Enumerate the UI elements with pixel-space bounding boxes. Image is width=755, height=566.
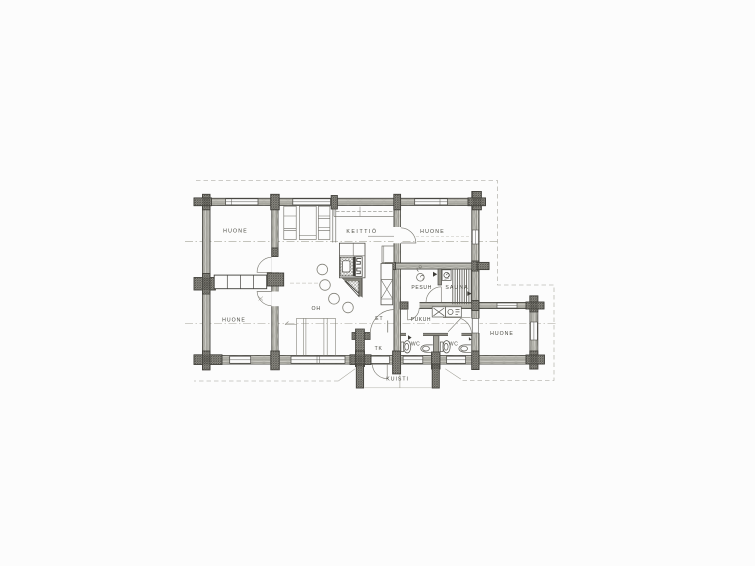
svg-text:HUONE: HUONE [222, 318, 246, 324]
svg-text:SAUNA: SAUNA [445, 285, 468, 291]
svg-text:OH: OH [312, 306, 322, 312]
svg-text:HUONE: HUONE [223, 229, 248, 235]
svg-text:WC: WC [449, 341, 459, 347]
svg-text:KUISTI: KUISTI [386, 377, 409, 383]
svg-text:HUONE: HUONE [490, 331, 514, 337]
svg-text:KEITTIÖ: KEITTIÖ [346, 228, 377, 235]
svg-text:HUONE: HUONE [420, 229, 445, 235]
svg-text:WC: WC [411, 341, 421, 347]
svg-text:PUKUH: PUKUH [411, 317, 432, 323]
svg-text:TK: TK [375, 346, 383, 352]
svg-text:PESUH: PESUH [411, 285, 432, 291]
svg-text:ET: ET [375, 316, 383, 322]
